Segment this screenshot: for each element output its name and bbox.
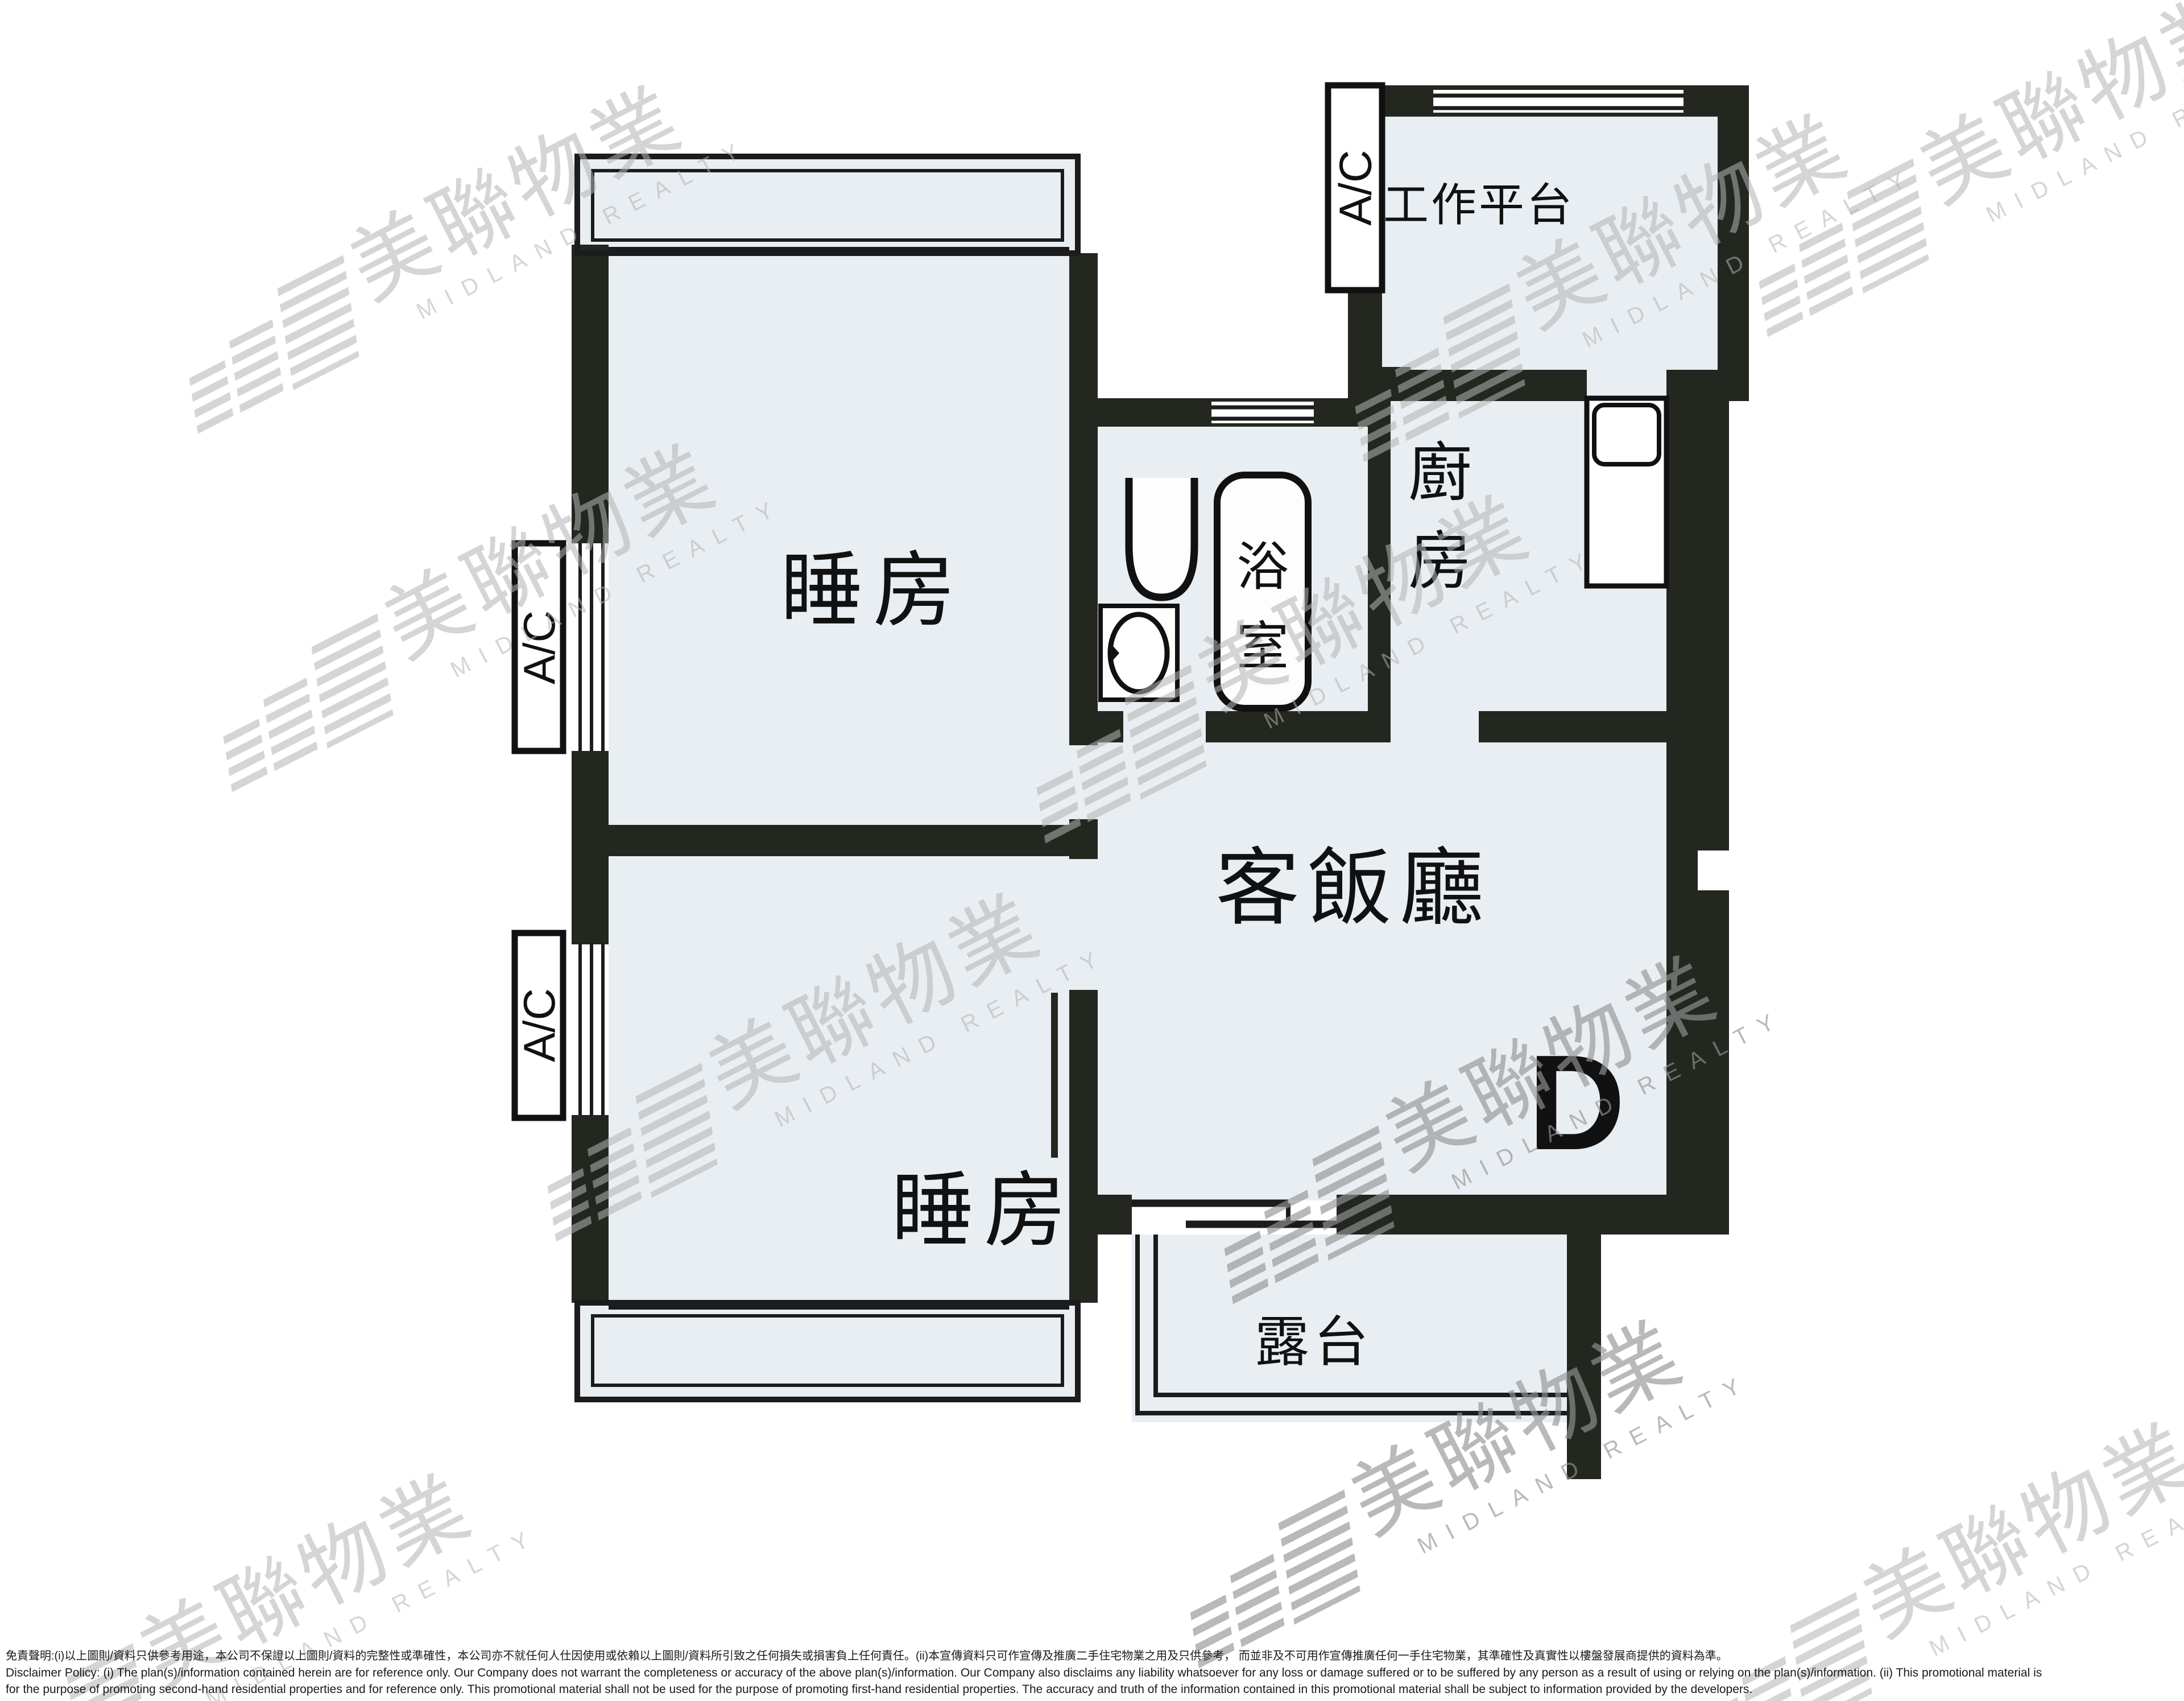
unit-label: D (1528, 1027, 1625, 1178)
label-ac-top-right: A/C (1330, 150, 1381, 225)
wall-segment (1069, 253, 1098, 745)
wall-segment (572, 825, 1098, 856)
wall-segment (1382, 370, 1587, 401)
disclaimer-line-en-2: for the purpose of promoting second-hand… (6, 1681, 2182, 1698)
wall-segment (572, 751, 609, 828)
floor-plan-page: 工作平台 廚 房 浴 室 睡房 睡房 客飯廳 露台 D A/C A/C A/C … (0, 0, 2184, 1701)
living-dining-floor (1069, 740, 1729, 1200)
kitchen-fixtures (1587, 398, 1666, 586)
wall-segment (1206, 711, 1391, 742)
label-bathroom-char2: 室 (1236, 618, 1289, 676)
wall-segment (1098, 711, 1123, 742)
kitchen-sink (1594, 405, 1659, 464)
wall-segment (1337, 1195, 1729, 1235)
floor-plan-drawing: 工作平台 廚 房 浴 室 睡房 睡房 客飯廳 露台 D A/C A/C A/C (0, 0, 2184, 1701)
door-leaf (1051, 993, 1058, 1158)
disclaimer: 免責聲明:(i)以上圖則/資料只供參考用途，本公司不保證以上圖則/資料的完整性或… (6, 1648, 2182, 1698)
wall-segment (572, 245, 609, 543)
label-utility-platform: 工作平台 (1383, 180, 1574, 230)
wall-segment (1348, 367, 1410, 401)
wall-segment (1479, 711, 1729, 742)
disclaimer-line-zh: 免責聲明:(i)以上圖則/資料只供參考用途，本公司不保證以上圖則/資料的完整性或… (6, 1648, 2182, 1665)
utility-platform-floor (1382, 117, 1718, 370)
label-living-dining: 客飯廳 (1215, 841, 1492, 935)
balcony-right-wall (1567, 1235, 1601, 1479)
label-kitchen-char2: 房 (1408, 526, 1472, 597)
label-kitchen-char1: 廚 (1408, 437, 1472, 509)
wall-segment (572, 853, 609, 944)
wall-notch (1698, 850, 1732, 890)
label-bathroom-char1: 浴 (1236, 538, 1289, 596)
label-ac-lower-left: A/C (514, 988, 564, 1062)
wall-segment (572, 1115, 609, 1303)
wall-segment (1368, 398, 1391, 714)
label-bedroom-bottom: 睡房 (891, 1165, 1077, 1257)
balcony-sliding-door (1132, 1203, 1337, 1224)
wall-segment (1666, 375, 1729, 1235)
wall-segment (1098, 1195, 1132, 1235)
label-ac-upper-left: A/C (514, 610, 564, 684)
label-bedroom-top: 睡房 (780, 544, 966, 637)
wall-segment (1718, 85, 1749, 398)
label-balcony: 露台 (1255, 1312, 1373, 1373)
disclaimer-line-en-1: Disclaimer Policy: (i) The plan(s)/infor… (6, 1665, 2182, 1681)
toilet (1129, 478, 1194, 597)
